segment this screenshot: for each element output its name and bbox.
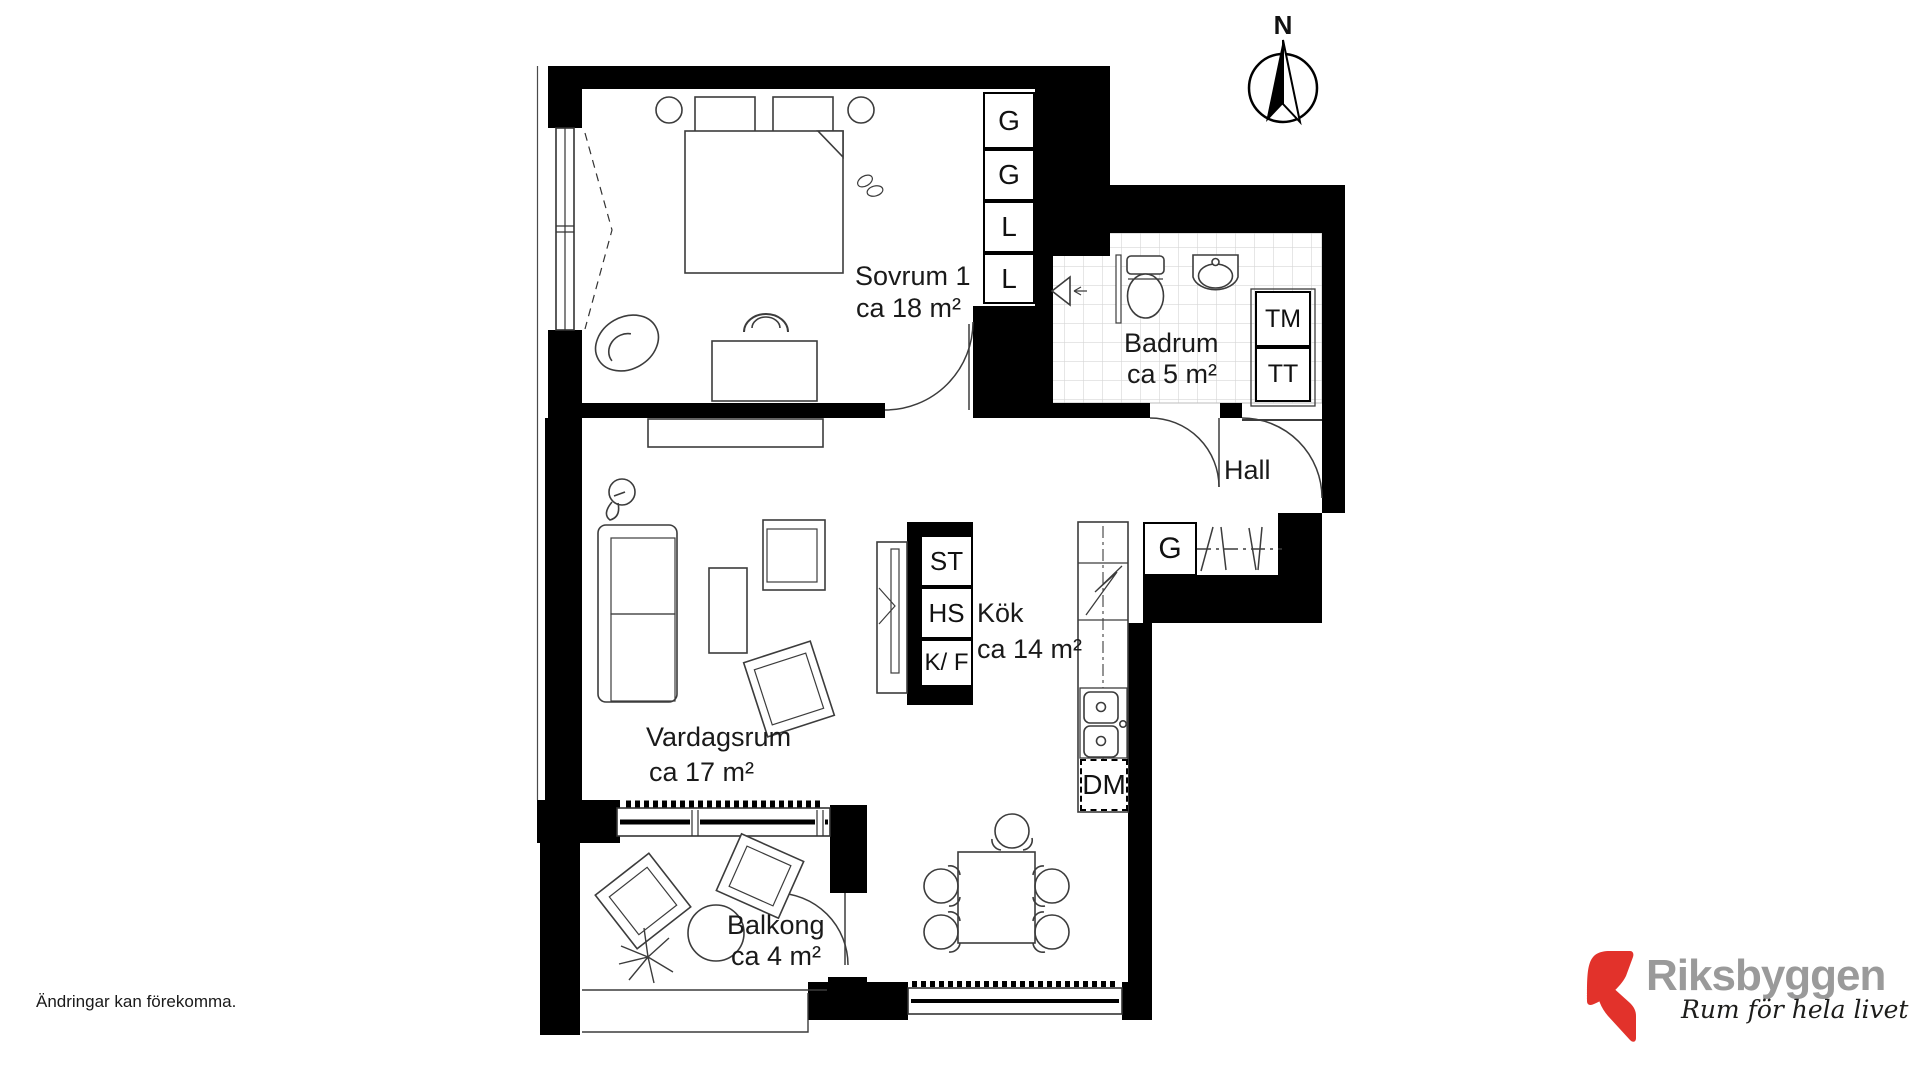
room-label-balkong: Balkong <box>727 910 825 941</box>
armchair-square <box>763 520 825 590</box>
room-area-kok: ca 14 m² <box>977 634 1082 665</box>
riksbyggen-brand-text: Riksbyggen <box>1646 951 1885 1001</box>
wall-bedroom-bottom <box>548 403 885 418</box>
wall-bottom-right-pier <box>1122 982 1152 1020</box>
dining-group <box>924 814 1069 952</box>
washbasin <box>1193 255 1238 290</box>
coffee-table <box>709 568 747 653</box>
room-label-vardagsrum: Vardagsrum <box>646 722 791 753</box>
shower-screen <box>1116 255 1121 323</box>
riksbyggen-logo-mark-icon <box>1587 951 1636 1042</box>
room-label-sovrum: Sovrum 1 <box>855 261 971 292</box>
dining-window <box>908 984 1122 1014</box>
closet-box-l1: L <box>983 201 1035 253</box>
dining-chair <box>992 814 1032 850</box>
desk <box>712 341 817 401</box>
balcony-chair <box>595 853 690 948</box>
room-area-vardagsrum: ca 17 m² <box>649 757 754 788</box>
fridge-freezer-box: K/ F <box>920 639 973 687</box>
wall-balcony-pier-upper <box>830 805 867 893</box>
hall-closet-box: G <box>1143 522 1197 576</box>
plant <box>606 479 635 520</box>
wall-kitchen-cap-top <box>907 522 973 535</box>
wall-kitchen-left <box>907 535 920 687</box>
window-opening-dashes <box>585 133 612 329</box>
wall-hall-top-a <box>1047 403 1150 418</box>
north-label: N <box>1266 10 1300 41</box>
closet-box-g1: G <box>983 92 1035 149</box>
tumble-dryer-box: TT <box>1255 347 1311 402</box>
hall-coat-rail <box>1197 527 1282 571</box>
bedside-lamp <box>656 97 682 123</box>
closet-box-g2: G <box>983 149 1035 201</box>
room-label-hall: Hall <box>1224 455 1271 486</box>
riksbyggen-tagline-text: Rum för hela livet <box>1681 995 1908 1024</box>
toilet <box>1127 256 1164 318</box>
wall-balcony-topleft <box>537 800 620 843</box>
dishwasher-box: DM <box>1080 759 1128 811</box>
wall-left-living <box>545 418 582 803</box>
dining-chair <box>924 912 960 952</box>
wall-bedroom-door-pier <box>973 306 1050 418</box>
wall-kitchen-right <box>1128 623 1152 1020</box>
balcony-chair <box>716 834 803 918</box>
wall-kitchen-cap-bottom <box>907 687 973 705</box>
wall-left-upper <box>548 66 582 128</box>
tv-bench <box>877 542 907 693</box>
bedroom-armchair <box>585 304 668 382</box>
dining-chair <box>1033 912 1069 952</box>
bedroom-window <box>556 128 612 330</box>
room-label-kok: Kök <box>977 598 1024 629</box>
bedroom-door <box>885 322 973 410</box>
bedroom-furniture <box>585 97 884 401</box>
double-bed <box>685 97 843 273</box>
pillow <box>773 97 833 133</box>
balcony-railing <box>582 990 827 1032</box>
balcony-window <box>617 804 830 836</box>
room-label-badrum: Badrum <box>1124 328 1219 359</box>
disclaimer-text: Ändringar kan förekomma. <box>36 992 236 1012</box>
desk-chair <box>744 314 788 332</box>
room-area-balkong: ca 4 m² <box>731 941 821 972</box>
room-area-sovrum: ca 18 m² <box>856 293 961 324</box>
wall-hall-top-b <box>1220 403 1242 418</box>
wall-balcony-pier-lower <box>828 977 867 990</box>
pillow <box>695 97 755 133</box>
living-room-furniture <box>598 419 907 737</box>
slippers <box>856 173 884 198</box>
wall-bathroom-top <box>1050 185 1345 233</box>
wall-hall-right-step <box>1278 513 1322 623</box>
dining-chair <box>924 866 960 906</box>
shelf-closet-box: HS <box>920 587 973 639</box>
sofa <box>598 525 677 702</box>
tall-cabinet-symbol <box>1086 566 1122 615</box>
bathroom-door <box>1150 418 1219 487</box>
kitchen-sink <box>1080 688 1127 758</box>
bedside-lamp <box>848 97 874 123</box>
washing-machine-box: TM <box>1255 291 1311 347</box>
floorplan-page: Sovrum 1 ca 18 m² Badrum ca 5 m² Hall Kö… <box>0 0 1920 1080</box>
cleaning-closet-box: ST <box>920 535 973 587</box>
room-area-badrum: ca 5 m² <box>1127 359 1217 390</box>
dining-chair <box>1033 866 1069 906</box>
closet-box-l2: L <box>983 253 1035 304</box>
north-compass-icon <box>1249 40 1317 122</box>
wall-bedroom-top <box>548 66 1035 89</box>
sideboard <box>648 419 823 447</box>
wall-balcony-left <box>540 843 580 1035</box>
wall-under-hall-closet <box>1143 575 1278 623</box>
dining-table <box>958 852 1035 943</box>
wall-right-outer <box>1322 185 1345 513</box>
